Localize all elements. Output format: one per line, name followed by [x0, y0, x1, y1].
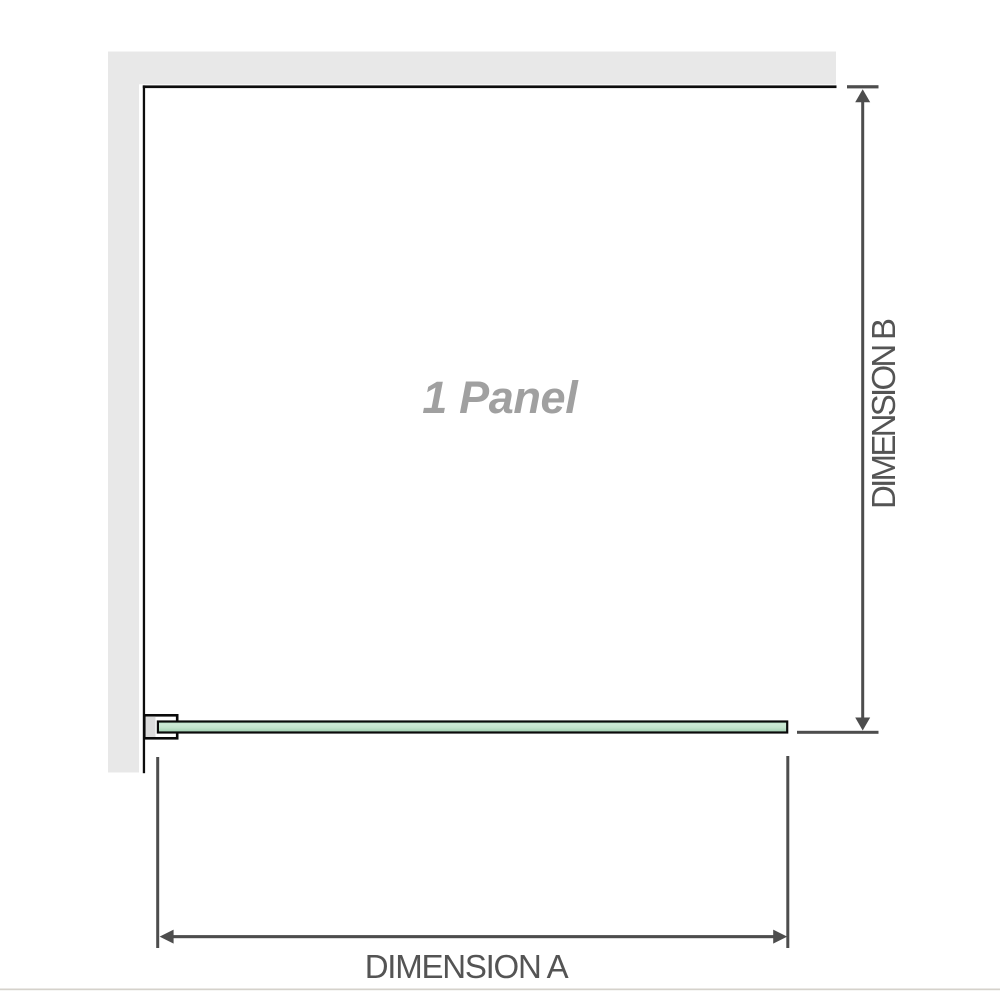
svg-text:1 Panel: 1 Panel: [422, 372, 579, 423]
svg-text:DIMENSION B: DIMENSION B: [865, 318, 902, 509]
svg-text:DIMENSION A: DIMENSION A: [365, 948, 569, 985]
